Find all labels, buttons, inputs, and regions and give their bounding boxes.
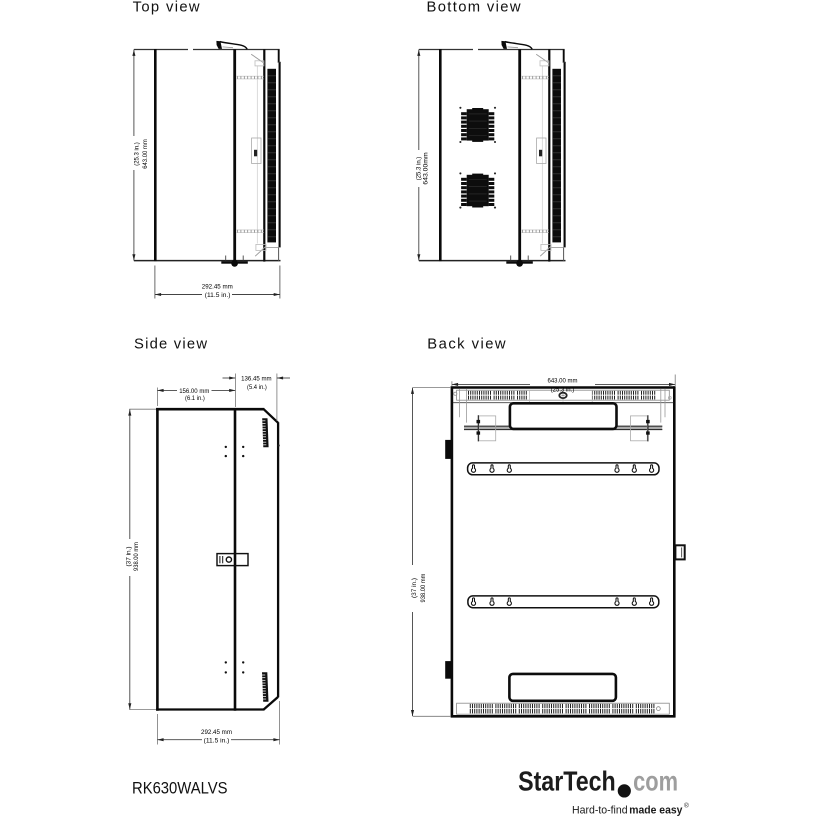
svg-text:136.45 mm: 136.45 mm: [241, 375, 272, 382]
svg-text:StarTech: StarTech: [518, 766, 616, 797]
svg-text:Top view: Top view: [133, 0, 200, 16]
svg-text:(37 in.): (37 in.): [125, 547, 132, 567]
svg-text:(5.4 in.): (5.4 in.): [247, 384, 267, 391]
svg-text:(11.5 in.): (11.5 in.): [204, 738, 230, 745]
svg-text:Side view: Side view: [134, 336, 207, 352]
svg-text:Bottom view: Bottom view: [427, 0, 521, 16]
svg-text:made easy: made easy: [629, 805, 683, 817]
svg-text:Hard-to-find: Hard-to-find: [572, 805, 628, 817]
svg-text:938.00 mm: 938.00 mm: [420, 574, 427, 603]
svg-text:(6.1 in.): (6.1 in.): [185, 395, 205, 402]
svg-text:643.00 mm: 643.00 mm: [548, 378, 578, 385]
svg-text:Back view: Back view: [427, 336, 506, 352]
svg-text:292.45 mm: 292.45 mm: [202, 284, 233, 291]
svg-text:156.00 mm: 156.00 mm: [179, 388, 209, 395]
svg-text:com: com: [633, 766, 678, 797]
svg-text:(37 in.): (37 in.): [411, 578, 418, 598]
svg-text:®: ®: [684, 802, 689, 810]
svg-text:643.00mm: 643.00mm: [423, 152, 430, 184]
svg-text:(11.5 in.): (11.5 in.): [205, 292, 231, 299]
svg-text:643.00 mm: 643.00 mm: [142, 139, 149, 169]
svg-text:292.45 mm: 292.45 mm: [201, 729, 232, 736]
svg-text:938.00 mm: 938.00 mm: [133, 542, 140, 571]
svg-text:(25.3 in.): (25.3 in.): [551, 386, 575, 393]
svg-text:(25.3 in.): (25.3 in.): [415, 157, 422, 181]
svg-text:(25.3 in.): (25.3 in.): [134, 142, 141, 166]
svg-text:RK630WALVS: RK630WALVS: [132, 780, 228, 798]
